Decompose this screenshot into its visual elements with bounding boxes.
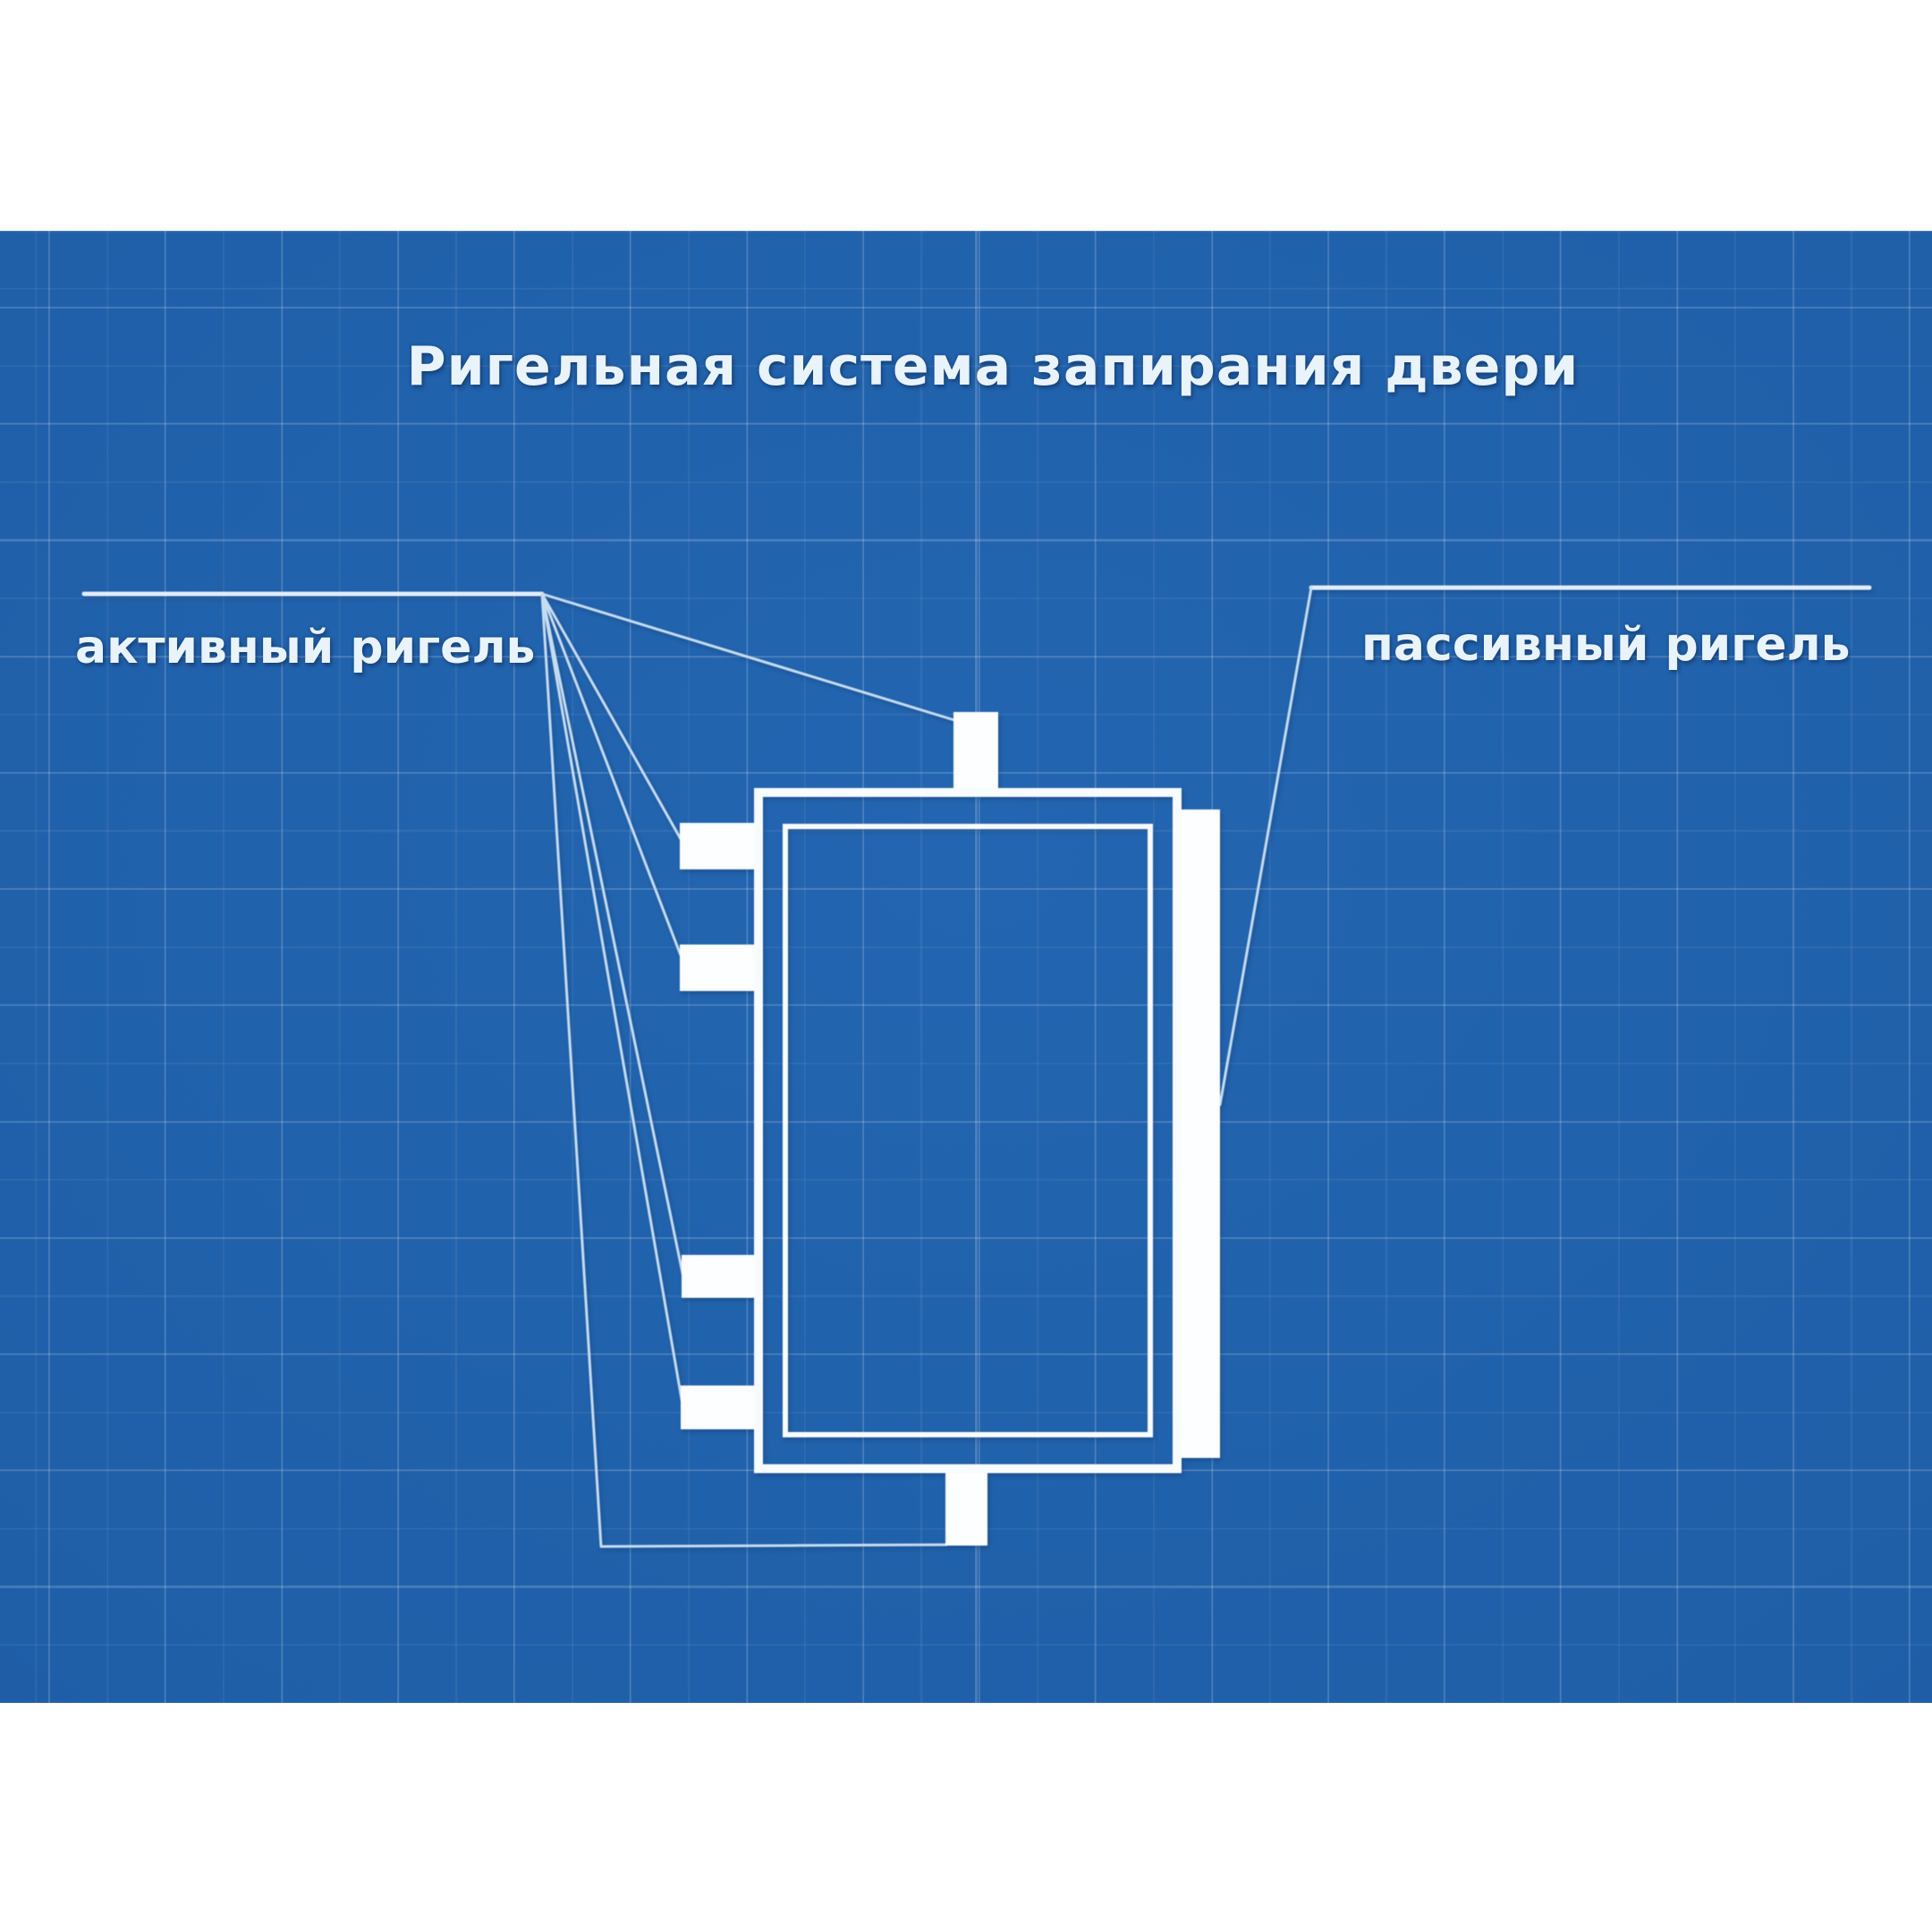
door-bolt-diagram — [0, 0, 1932, 1932]
leader-passive-strip — [1220, 588, 1311, 1105]
label-passive-bolt: пассивный ригель — [1361, 622, 1851, 668]
label-active-bolt: активный ригель — [75, 624, 535, 671]
door-inner-panel — [785, 826, 1150, 1435]
left-bolt-2 — [680, 945, 762, 991]
leader-left-bolt-2 — [542, 594, 681, 955]
diagram-title: Ригельная система запирания двери — [407, 340, 1580, 394]
bottom-bolt — [945, 1467, 987, 1546]
page-background: Ригельная система запирания двери активн… — [0, 0, 1932, 1932]
door-outer-frame — [758, 792, 1177, 1469]
left-bolt-1 — [680, 823, 762, 869]
left-bolt-4 — [681, 1385, 762, 1429]
left-bolt-3 — [682, 1255, 762, 1298]
door-drawing — [680, 712, 1220, 1546]
top-bolt — [953, 712, 998, 792]
